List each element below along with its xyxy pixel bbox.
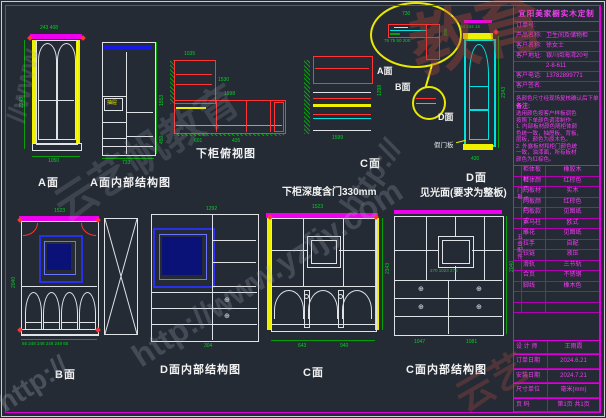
- line: [313, 92, 371, 93]
- crown-bar: [464, 20, 492, 23]
- label-d-face-internal: D面内部结构图: [160, 361, 241, 377]
- panel: [469, 110, 489, 140]
- label-b-face: B面: [55, 366, 76, 382]
- spec-row: 拉手 自配: [514, 240, 599, 251]
- wall-hatch: [174, 133, 284, 136]
- cad-sheet: 教育 云艺帆教育 http://www.yzfjy.com http:// ht…: [0, 0, 606, 418]
- line: [416, 103, 436, 104]
- dim: 450: [160, 136, 165, 144]
- b-face-elevation: 1523 2040 65 248 248 248 249 65: [14, 208, 146, 356]
- label-d-face: D面: [466, 169, 487, 185]
- line: [176, 107, 206, 109]
- line: [103, 146, 153, 147]
- spec-row: 门板款式 见图纸: [514, 208, 599, 219]
- dim-line: [21, 339, 97, 340]
- spec-label: 脚线: [514, 282, 546, 292]
- spec-row: [514, 303, 599, 314]
- dim: 75 75 50 200: [384, 39, 410, 44]
- line: [176, 125, 282, 126]
- label-c-face: C面: [303, 364, 324, 380]
- line: [303, 218, 304, 286]
- spec-value: 三节轨: [546, 261, 599, 271]
- footer-row: 页 码 第1页 共1页: [514, 398, 599, 413]
- dim-line: [506, 216, 507, 334]
- spec-row: 铰链 液压: [514, 250, 599, 261]
- a-face-internal-structure: 抽屉 1553 450 733: [98, 36, 166, 172]
- spec-row: 滑轨 三节轨: [514, 261, 599, 272]
- drawer-knob: ⊕: [476, 286, 482, 293]
- field-label: 客户签名:: [516, 82, 546, 91]
- line: [313, 98, 371, 99]
- plan-box: [313, 56, 373, 84]
- line: [484, 216, 485, 280]
- notes-lines: 选用颜色按客户样板调色 按照下单颜色调漆制作: 1. 内部板材颜色随柜体颜 色统…: [516, 111, 599, 163]
- spec-value: 见图纸: [546, 208, 599, 218]
- spec-row: 合页 不锈钢: [514, 271, 599, 282]
- spec-row: 脚线 橡木色: [514, 282, 599, 293]
- field-value: 徐女士: [546, 42, 564, 51]
- field-value: 2-8-611: [546, 62, 566, 71]
- line: [246, 100, 247, 132]
- footer-row: 设 计 师 王雨霞: [514, 340, 599, 355]
- field-label: 客户名称:: [516, 42, 546, 51]
- footer-value: 毫米(mm): [548, 384, 599, 397]
- door-panel: [57, 66, 76, 140]
- field-row: 客户名称: 徐女士: [514, 42, 599, 52]
- d-face-elevation: 54 234 15 2343 430: [456, 16, 510, 170]
- dim: 1998: [224, 92, 235, 97]
- shelf: [213, 262, 256, 263]
- end-panel: [274, 102, 284, 132]
- field-row: 订单号:: [514, 22, 599, 32]
- line: [455, 216, 456, 236]
- blue-panel-fill: [47, 244, 71, 270]
- dim: 1081: [466, 340, 477, 345]
- crown-bar: [30, 34, 82, 39]
- spec-value: 橡木色: [546, 282, 599, 292]
- dim-line: [102, 158, 154, 159]
- label-a-face-internal: A面内部结构图: [90, 174, 171, 190]
- field-row: 产品名称: 卫生间及储物柜: [514, 32, 599, 42]
- dim: 200: [444, 28, 449, 36]
- spec-value: 实木: [546, 187, 599, 197]
- drawer-knob: ⊕: [418, 286, 424, 293]
- footer-row: 订单日期 2024.6.21: [514, 354, 599, 369]
- group-label-hardware: 五金配件: [515, 234, 523, 260]
- panel: [469, 86, 489, 110]
- dim: 1599: [332, 136, 343, 141]
- line: [394, 250, 438, 251]
- line: [339, 250, 375, 251]
- dim: 1553: [160, 95, 165, 106]
- lower-cabinet-plan-view: 1035 1530 1998 601 435: [170, 50, 294, 146]
- dim-line: [32, 156, 80, 157]
- title-block: 宜阳美家橱实木定制 订单号: 产品名称: 卫生间及储物柜 客户名称: 徐女士: [513, 5, 600, 413]
- dim-tick: [80, 35, 86, 41]
- drawer-knob: ⊕: [224, 313, 230, 320]
- dim: 643: [298, 344, 306, 349]
- field-value: 银川阅海湾20号: [546, 52, 589, 61]
- group-label-door: 门板: [515, 187, 523, 200]
- footer-label: 订单日期: [514, 355, 548, 368]
- blue-panel-fill: [162, 237, 202, 275]
- field-label: [516, 62, 546, 71]
- dim: 65 248 248 248 249 65: [22, 342, 68, 347]
- spec-value: [546, 292, 599, 302]
- spec-value: 不锈钢: [546, 271, 599, 281]
- field-value: 卫生间及储物柜: [546, 32, 588, 41]
- shelf: [213, 286, 256, 287]
- spec-label: 柜体板材: [514, 166, 546, 176]
- drawer-label: 抽屉: [107, 101, 117, 106]
- footer-value: 2024.6.21: [548, 355, 599, 368]
- dim: 601: [194, 139, 202, 144]
- spec-label: 罗马柱: [514, 219, 546, 229]
- line: [343, 218, 344, 286]
- dim-line: [271, 340, 375, 341]
- field-row: 客户签名:: [514, 82, 599, 92]
- center-square-inner: [442, 240, 470, 264]
- drawer-knob: ⊕: [224, 297, 230, 304]
- partition: [126, 52, 127, 154]
- line: [38, 100, 74, 101]
- center-square-inner: [311, 240, 337, 264]
- dim-line: [382, 218, 383, 330]
- spec-value: 见图纸: [546, 229, 599, 239]
- drawer-line: [151, 324, 257, 325]
- line: [472, 250, 502, 251]
- dim: 435: [232, 139, 240, 144]
- shelf: [213, 240, 256, 241]
- spec-label: 柜体颜色: [514, 177, 546, 187]
- line: [313, 130, 371, 131]
- dim-line: [156, 42, 157, 154]
- dim: 1047: [414, 340, 425, 345]
- label-d-face-note: 见光面(要求为整板): [420, 184, 507, 199]
- dim: 430: [471, 157, 479, 162]
- label-depth-note: 下柜深度含门330mm: [282, 183, 376, 198]
- spec-label: [514, 303, 546, 313]
- line: [313, 104, 371, 107]
- spec-value: 自配: [546, 240, 599, 250]
- line: [270, 100, 271, 132]
- shelf: [103, 122, 126, 123]
- dim: 54 234 15: [460, 25, 480, 30]
- line: [394, 27, 408, 28]
- dim-line: [24, 40, 25, 149]
- dim: 1523: [312, 205, 323, 210]
- field-value: 13782899771: [546, 72, 583, 81]
- note-line: 颜色为红棕色。: [516, 157, 599, 164]
- field-row: 客户电话: 13782899771: [514, 72, 599, 82]
- dim: 2343: [502, 87, 507, 98]
- footer-label: 安装日期: [514, 370, 548, 383]
- dim: 1523: [54, 209, 65, 214]
- spec-value: 红棕色: [546, 198, 599, 208]
- footer-row: 尺寸单位 毫米(mm): [514, 383, 599, 398]
- plan-box: [174, 60, 216, 104]
- footer-value: 2024.7.21: [548, 370, 599, 383]
- spec-row: 门板材质 实木: [514, 187, 599, 198]
- x-panel: [104, 218, 138, 335]
- line: [151, 292, 257, 293]
- spec-label: [514, 292, 546, 302]
- spec-value: 红棕色: [546, 177, 599, 187]
- field-label: 订单号:: [516, 22, 546, 31]
- line: [448, 280, 449, 334]
- arrow-label-d-face: D面: [438, 110, 454, 123]
- spec-row: 柜体板材 橡胶木: [514, 166, 599, 177]
- fake-door-label: 假门板: [434, 139, 454, 149]
- spec-label: 合页: [514, 271, 546, 281]
- dim: 940: [340, 344, 348, 349]
- footer-value: 第1页 共1页: [548, 399, 599, 412]
- shelf: [127, 112, 153, 113]
- spec-label: 门板款式: [514, 208, 546, 218]
- dim: 1035: [184, 52, 195, 57]
- wall-hatch: [304, 60, 310, 134]
- spec-value: 橡胶木: [546, 166, 599, 176]
- spec-row: 雕花 见图纸: [514, 229, 599, 240]
- customer-fields: 订单号: 产品名称: 卫生间及储物柜 客户名称: 徐女士 客户地址: 银川阅海湾…: [514, 22, 599, 92]
- drawer-knob: ⊕: [418, 304, 424, 311]
- base: [32, 143, 82, 151]
- dim: 1050: [48, 159, 59, 164]
- line: [21, 286, 97, 287]
- shelf: [103, 96, 126, 97]
- door-panel: [38, 66, 57, 140]
- confirm-warning: 各颜色尺寸经现场复核确认后下单: [514, 95, 599, 103]
- watermark-protocol: http://: [0, 349, 74, 418]
- footer-label: 尺寸单位: [514, 384, 548, 397]
- line: [271, 250, 307, 251]
- bottom-cap: [463, 144, 493, 150]
- arrow-label-a-face: A面: [377, 64, 393, 77]
- label-c-face-internal: C面内部结构图: [406, 361, 487, 377]
- corner-detail: [426, 24, 440, 60]
- dim: 1530: [218, 78, 229, 83]
- line: [390, 33, 400, 35]
- label-c-plan: C面: [360, 155, 381, 171]
- drawer-line: [151, 308, 257, 309]
- column-knob: [338, 294, 343, 299]
- line: [216, 100, 217, 132]
- dim: 2040: [12, 277, 17, 288]
- label-plan-view: 下柜俯视图: [196, 145, 256, 161]
- dim: 2343: [20, 97, 25, 108]
- line: [176, 84, 212, 85]
- c-face-elevation: 1523 2343 643 940: [260, 204, 394, 356]
- spec-table: 门板 五金配件 柜体板材 橡胶木 柜体颜色 红棕色 门板材质: [514, 165, 599, 313]
- footer-value: 王雨霞: [548, 341, 599, 354]
- d-face-internal-structure: ⊕ ⊕ 1292 304: [146, 206, 268, 356]
- line: [416, 98, 436, 99]
- partition: [212, 214, 213, 340]
- spec-value: 欧式: [546, 219, 599, 229]
- line: [390, 30, 426, 31]
- line: [313, 118, 371, 119]
- line: [271, 286, 375, 287]
- label-a-face: A面: [38, 174, 59, 190]
- line: [176, 74, 212, 75]
- dim: 733: [122, 161, 130, 166]
- spec-row: [514, 292, 599, 303]
- spec-row: 罗马柱 欧式: [514, 219, 599, 230]
- top-rail-blue: [104, 45, 152, 50]
- spec-row: 柜体颜色 红棕色: [514, 177, 599, 188]
- c-face-internal-structure: ⊕ ⊕ ⊕ ⊕ 270 1023 276 1047 1081 2040: [388, 200, 516, 356]
- base: [21, 329, 99, 336]
- a-face-elevation: 243 408 2343 1050: [28, 28, 90, 170]
- title-block-title: 宜阳美家橱实木定制: [514, 6, 599, 22]
- carcass-frame: [394, 216, 504, 336]
- dim-tick: [493, 29, 499, 35]
- field-label: 客户电话:: [516, 72, 546, 81]
- line: [313, 114, 371, 115]
- field-label: 客户地址:: [516, 52, 546, 61]
- spec-label: 滑轨: [514, 261, 546, 271]
- notes-title: 备注:: [516, 103, 599, 111]
- footer-label: 设 计 师: [514, 341, 548, 354]
- line: [315, 68, 369, 69]
- footer-label: 页 码: [514, 399, 548, 412]
- field-label: 产品名称:: [516, 32, 546, 41]
- notes: 备注: 选用颜色按客户样板调色 按照下单颜色调漆制作: 1. 内部板材颜色随柜体…: [514, 103, 599, 163]
- line: [426, 216, 427, 280]
- dim: 730: [402, 12, 410, 17]
- arrow-label-b-face: B面: [395, 80, 411, 93]
- shelf: [127, 136, 153, 137]
- crown-bar: [394, 210, 502, 214]
- spec-row: 门板颜色 红棕色: [514, 198, 599, 209]
- dim: 270 1023 276: [430, 269, 458, 274]
- dim: 1292: [206, 207, 217, 212]
- spec-value: 液压: [546, 250, 599, 260]
- footer-row: 安装日期 2024.7.21: [514, 369, 599, 384]
- spec-value: [546, 303, 599, 313]
- base: [271, 324, 377, 332]
- x-panel-diagonals: [105, 219, 137, 334]
- title-block-footer: 设 计 师 王雨霞 订单日期 2024.6.21 安装日期 2024.7.21 …: [514, 340, 599, 413]
- field-row: 2-8-611: [514, 62, 599, 72]
- dim: 243 408: [40, 26, 58, 31]
- column-knob: [304, 294, 309, 299]
- drawer-knob: ⊕: [476, 304, 482, 311]
- dim-line: [498, 36, 499, 148]
- dim: 304: [204, 344, 212, 349]
- field-row: 客户地址: 银川阅海湾20号: [514, 52, 599, 62]
- shelf: [103, 138, 126, 139]
